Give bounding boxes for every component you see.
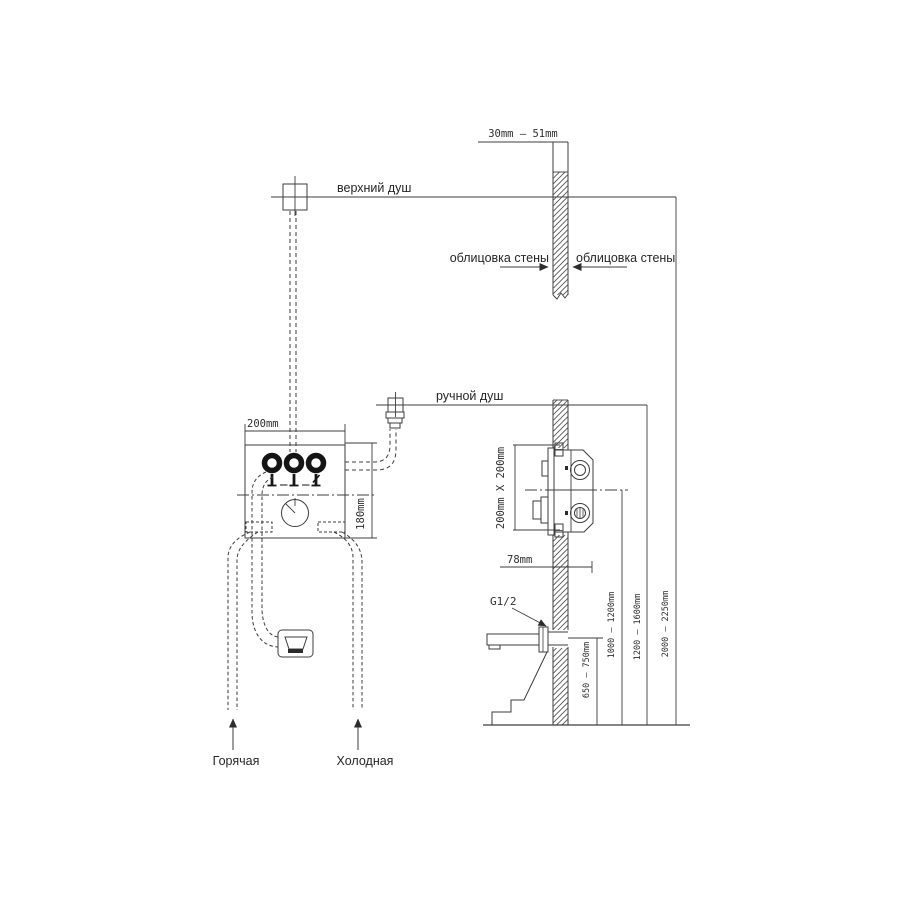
dim-mixer-height: 1000 – 1200mm bbox=[607, 592, 617, 659]
valve-outlet-rings bbox=[265, 456, 324, 471]
overhead-shower-head-icon bbox=[271, 176, 319, 216]
label-cold-supply: Холодная bbox=[337, 754, 394, 768]
dim-spout-height: 650 – 750mm bbox=[582, 642, 592, 698]
hidden-connection-left bbox=[246, 522, 272, 532]
dim-box-depth: 78mm bbox=[507, 554, 532, 566]
handle-stem-lower bbox=[541, 497, 548, 523]
cartridge-dial-icon bbox=[282, 498, 309, 527]
wall-section-upper bbox=[478, 142, 568, 299]
side-view bbox=[478, 142, 690, 725]
dim-cladding-range: 30mm – 51mm bbox=[488, 128, 558, 140]
valve-position-marks bbox=[268, 474, 321, 486]
rough-in-size-dimension bbox=[513, 445, 560, 530]
label-upper-shower: верхний душ bbox=[337, 181, 411, 195]
handle-stem-upper bbox=[542, 461, 548, 476]
dim-hand-shower-height: 1200 – 1600mm bbox=[633, 594, 643, 661]
hot-supply-pipe bbox=[228, 532, 258, 710]
label-hot-supply: Горячая bbox=[213, 754, 260, 768]
dim-box-width: 200mm bbox=[247, 418, 279, 430]
cold-supply-pipe bbox=[334, 532, 362, 710]
dim-box-height: 180mm bbox=[355, 498, 367, 530]
mixer-box-side bbox=[525, 443, 628, 537]
hand-shower-connector-icon bbox=[386, 392, 404, 428]
diagram-canvas: верхний душ ручной душ облицовка стены о… bbox=[0, 0, 900, 900]
label-cladding-right: облицовка стены bbox=[576, 251, 675, 265]
label-thread-size: G1/2 bbox=[490, 595, 517, 608]
label-hand-shower: ручной душ bbox=[436, 389, 503, 403]
text-labels: верхний душ ручной душ облицовка стены о… bbox=[213, 128, 676, 768]
thread-callout-arrow bbox=[512, 608, 546, 626]
supply-arrows bbox=[233, 719, 358, 750]
dim-rough-in-size: 200mm X 200mm bbox=[495, 447, 507, 529]
spout-front-icon bbox=[278, 630, 313, 657]
dim-head-shower-height: 2000 – 2250mm bbox=[661, 591, 671, 658]
bath-profile bbox=[492, 652, 547, 725]
installation-diagram: верхний душ ручной душ облицовка стены о… bbox=[0, 0, 900, 900]
hidden-connection-right bbox=[318, 522, 345, 532]
overhead-shower-pipe bbox=[290, 211, 296, 452]
label-cladding-left: облицовка стены bbox=[450, 251, 549, 265]
spout-feed-pipe bbox=[252, 472, 278, 647]
hand-shower-hose bbox=[345, 429, 396, 470]
handle-stem-lower2 bbox=[533, 501, 541, 519]
